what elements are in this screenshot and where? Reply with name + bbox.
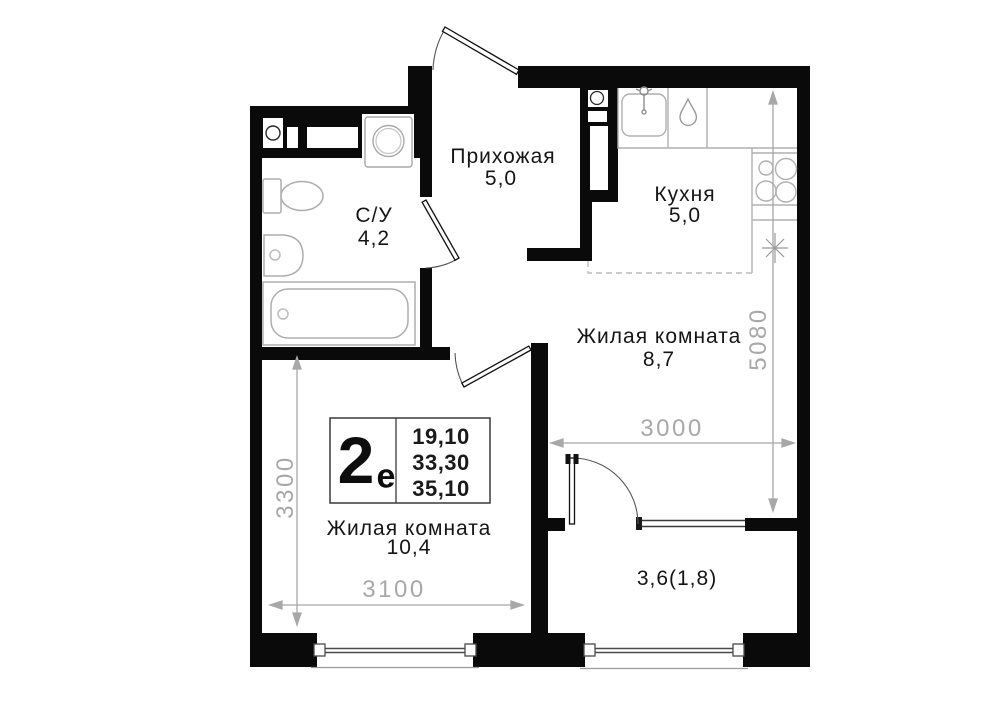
- toilet-bowl: [281, 182, 323, 211]
- bath-niche-small: [287, 127, 298, 148]
- vent-star-icon: [762, 233, 788, 263]
- water-drop-icon: [680, 99, 696, 125]
- entrance-door-arc: [433, 29, 445, 70]
- boiler-icon: [266, 126, 280, 140]
- washing-machine-outline: [365, 117, 412, 167]
- bathroom-door-leaf: [422, 200, 459, 260]
- wall-bathroom-bottom: [250, 347, 450, 360]
- window-balcony-frame-left: [584, 644, 595, 656]
- bath-niche-shelf: [307, 127, 358, 148]
- window-balcony-recess: [585, 633, 743, 667]
- dim-label-3000: 3000: [640, 415, 703, 443]
- bathtub-inner: [271, 289, 408, 338]
- wall-left: [250, 106, 262, 667]
- floor-plan: Прихожая 5,0 С/У 4,2 Кухня 5,0 Жилая ком…: [0, 0, 1000, 707]
- kitchen-niche-dashed-boundary: [588, 261, 752, 273]
- meter-icon: [591, 92, 604, 105]
- dim-arrow: [270, 601, 282, 609]
- dim-arrow: [511, 601, 523, 609]
- toilet-tank: [263, 179, 281, 213]
- shaft-niche-small: [588, 111, 607, 122]
- room-label-hallway-area: 5,0: [485, 167, 517, 191]
- window-living2-frame-left: [314, 644, 325, 656]
- window-mullion: [636, 517, 642, 530]
- room-label-bathroom-name: С/У: [355, 204, 392, 228]
- wall-right: [797, 66, 810, 667]
- stove-burners: [756, 159, 797, 203]
- wall-top: [518, 66, 810, 88]
- room-label-balcony-area: 3,6(1,8): [637, 567, 717, 591]
- dim-label-5080: 5080: [745, 307, 773, 370]
- wall-bathroom-right-lower: [420, 268, 432, 360]
- kitchen-fixtures: [588, 87, 797, 273]
- balcony-door-hinge-left: [566, 454, 571, 464]
- room-label-hallway-name: Прихожая: [450, 145, 555, 169]
- dim-arrow: [782, 439, 794, 447]
- info-type-number: 2: [338, 422, 375, 498]
- room-label-kitchen-area: 5,0: [669, 204, 701, 228]
- dim-arrow: [551, 439, 563, 447]
- shaft-niche-duct: [590, 126, 608, 190]
- dim-label-3300: 3300: [272, 455, 300, 518]
- balcony-door-arc: [572, 458, 638, 524]
- washing-machine: [362, 114, 414, 167]
- room-label-living1-name: Жилая комната: [577, 325, 742, 349]
- entrance-door-leaf: [443, 27, 520, 74]
- bathtub-drain: [278, 309, 288, 319]
- kitchen-faucet: [636, 87, 652, 114]
- wall-living-left: [531, 343, 548, 667]
- floor-plan-drawing: [0, 0, 1000, 707]
- window-living2-recess: [317, 633, 473, 667]
- wall-entrance-jamb: [408, 66, 432, 110]
- wall-balcony-top-right: [745, 518, 797, 531]
- dim-arrow: [769, 499, 777, 511]
- info-type-suffix: е: [377, 458, 396, 497]
- wall-balcony-top-left: [548, 518, 565, 531]
- window-living2-frame-right: [465, 644, 476, 656]
- window-balcony-frame-right: [733, 644, 744, 656]
- wall-bathroom-right-upper: [420, 106, 432, 197]
- room-label-bathroom-area: 4,2: [358, 227, 390, 251]
- dim-arrow: [293, 613, 301, 625]
- sink-drain: [270, 250, 280, 260]
- info-area-value-3: 35,10: [412, 476, 470, 502]
- room-label-living1-area: 8,7: [643, 348, 675, 372]
- info-area-value-2: 33,30: [412, 450, 470, 476]
- wall-niches: [263, 90, 608, 190]
- living2-door-leaf: [462, 346, 531, 387]
- balcony-door-hinge-right: [574, 454, 579, 464]
- info-area-value-1: 19,10: [412, 424, 470, 450]
- dim-label-3100: 3100: [362, 576, 425, 604]
- room-label-living2-area: 10,4: [387, 536, 432, 560]
- balcony-door-leaf: [570, 458, 575, 524]
- dim-arrow: [769, 92, 777, 104]
